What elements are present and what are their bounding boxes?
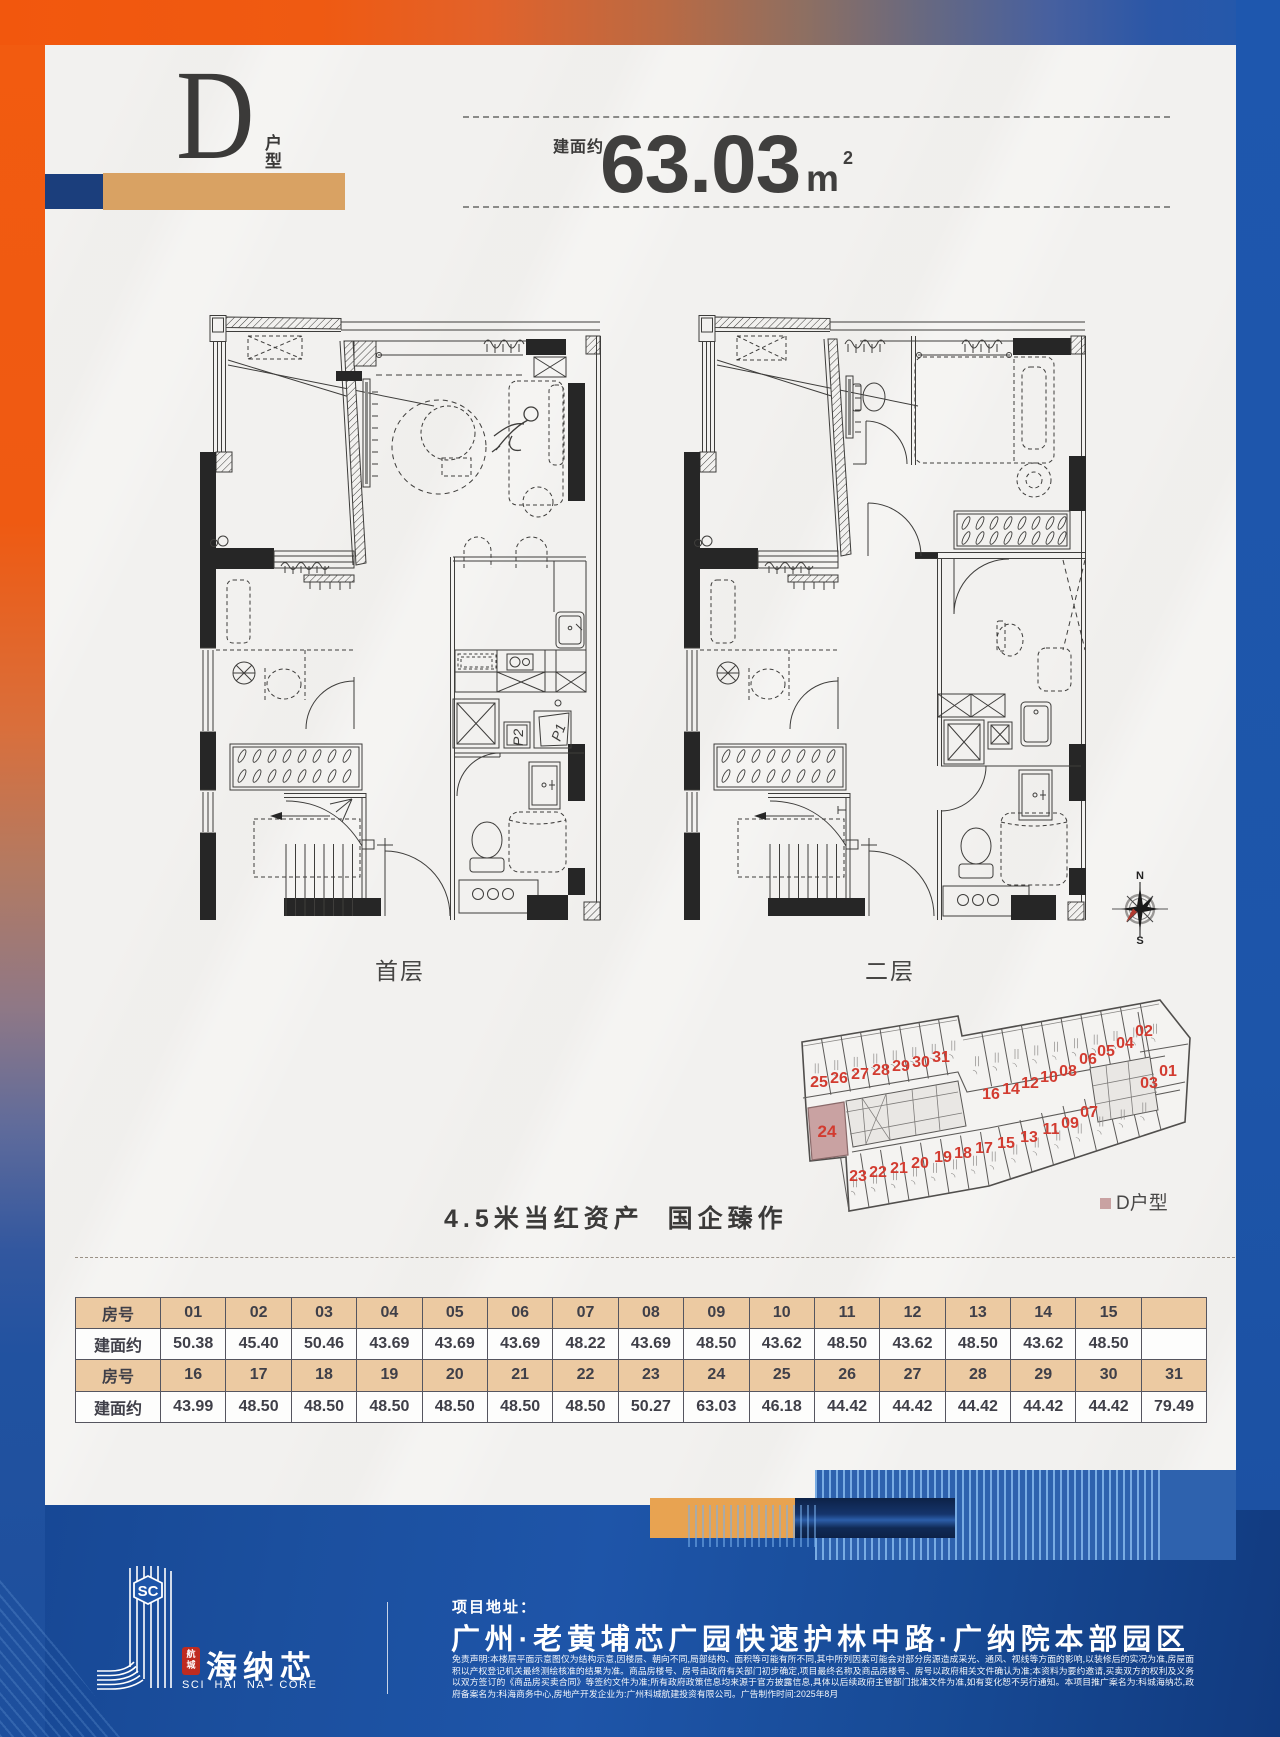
svg-text:31: 31 bbox=[932, 1049, 950, 1066]
svg-text:15: 15 bbox=[997, 1135, 1015, 1152]
svg-text:23: 23 bbox=[849, 1168, 867, 1185]
svg-text:28: 28 bbox=[872, 1062, 890, 1079]
svg-text:24: 24 bbox=[818, 1122, 837, 1141]
svg-text:N: N bbox=[1136, 870, 1144, 882]
svg-text:29: 29 bbox=[892, 1058, 910, 1075]
svg-text:25: 25 bbox=[810, 1074, 828, 1091]
svg-text:18: 18 bbox=[954, 1145, 972, 1162]
svg-text:04: 04 bbox=[1116, 1035, 1134, 1052]
svg-text:06: 06 bbox=[1079, 1051, 1097, 1068]
svg-text:07: 07 bbox=[1080, 1104, 1098, 1121]
svg-text:27: 27 bbox=[851, 1066, 869, 1083]
svg-text:02: 02 bbox=[1135, 1023, 1153, 1040]
svg-text:22: 22 bbox=[869, 1164, 887, 1181]
svg-text:05: 05 bbox=[1097, 1043, 1115, 1060]
svg-text:P2: P2 bbox=[510, 729, 526, 746]
svg-text:17: 17 bbox=[975, 1140, 993, 1157]
svg-text:26: 26 bbox=[830, 1070, 848, 1087]
svg-text:09: 09 bbox=[1061, 1115, 1079, 1132]
svg-text:10: 10 bbox=[1040, 1069, 1058, 1086]
svg-text:P1: P1 bbox=[548, 721, 569, 743]
svg-text:30: 30 bbox=[912, 1054, 930, 1071]
svg-text:14: 14 bbox=[1002, 1081, 1020, 1098]
svg-text:03: 03 bbox=[1140, 1075, 1158, 1092]
svg-text:12: 12 bbox=[1021, 1075, 1039, 1092]
svg-text:SC: SC bbox=[138, 1583, 159, 1600]
svg-text:19: 19 bbox=[934, 1149, 952, 1166]
svg-text:20: 20 bbox=[911, 1155, 929, 1172]
svg-text:08: 08 bbox=[1059, 1063, 1077, 1080]
svg-text:21: 21 bbox=[890, 1160, 908, 1177]
svg-text:11: 11 bbox=[1043, 1121, 1060, 1138]
svg-text:16: 16 bbox=[982, 1086, 1000, 1103]
svg-text:01: 01 bbox=[1159, 1063, 1177, 1080]
svg-text:13: 13 bbox=[1020, 1129, 1038, 1146]
